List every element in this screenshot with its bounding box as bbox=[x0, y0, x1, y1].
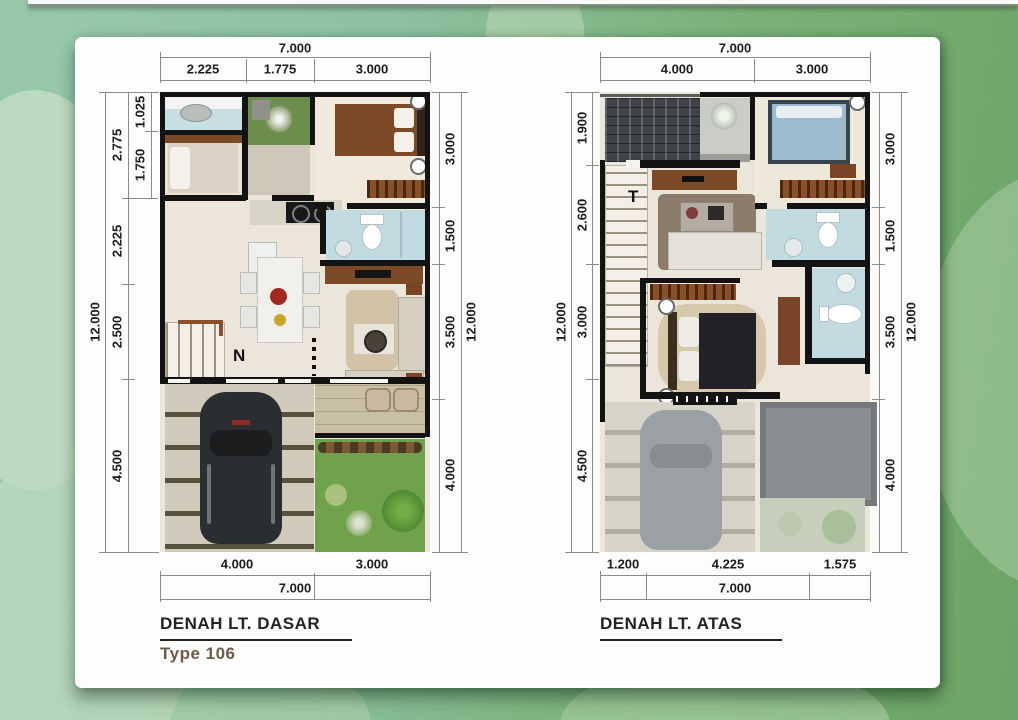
wall bbox=[160, 92, 430, 97]
dim-tick bbox=[600, 571, 601, 602]
tv-icon bbox=[355, 270, 391, 278]
dim-line bbox=[879, 92, 880, 552]
decor-icon bbox=[686, 207, 698, 219]
dim-label: 2.225 bbox=[187, 63, 220, 76]
dim-label: 4.000 bbox=[884, 459, 897, 492]
stair-rail bbox=[178, 320, 223, 324]
dim-label: 1.500 bbox=[884, 220, 897, 253]
dish-icon bbox=[274, 314, 286, 326]
dim-tick bbox=[160, 571, 161, 602]
dashed-partition bbox=[312, 338, 316, 376]
toilet-icon bbox=[362, 224, 382, 250]
car bbox=[200, 392, 282, 544]
sofa bbox=[668, 232, 762, 270]
window bbox=[226, 379, 278, 383]
dim-tick bbox=[430, 52, 431, 83]
dim-line bbox=[600, 599, 870, 600]
wall bbox=[320, 209, 326, 254]
wall bbox=[805, 358, 870, 364]
faded-flower-icon bbox=[778, 512, 802, 536]
floorplan-sheet: N bbox=[75, 37, 940, 688]
canopy-roof bbox=[760, 402, 877, 506]
dim-label: 12.000 bbox=[555, 302, 568, 342]
chair bbox=[240, 272, 257, 294]
ghost-car bbox=[640, 410, 722, 550]
bed-headboard bbox=[668, 312, 677, 390]
pillow bbox=[776, 106, 842, 118]
plan-ground-floor: N bbox=[160, 92, 430, 552]
nightstand bbox=[830, 164, 856, 178]
faded-bush-icon bbox=[822, 510, 856, 544]
chair bbox=[303, 272, 320, 294]
dim-label: 3.500 bbox=[444, 316, 457, 349]
dim-label: 4.500 bbox=[576, 450, 589, 483]
wall bbox=[315, 433, 425, 438]
dim-tick bbox=[432, 92, 468, 93]
flower-icon bbox=[325, 484, 347, 506]
dim-tick bbox=[314, 59, 315, 83]
dim-label: 12.000 bbox=[89, 302, 102, 342]
dim-line bbox=[600, 575, 870, 576]
bush-icon bbox=[382, 490, 424, 532]
dim-line bbox=[160, 575, 430, 576]
dim-tick bbox=[99, 92, 159, 93]
dim-label: 4.000 bbox=[221, 558, 254, 571]
dim-tick bbox=[870, 571, 871, 602]
car-detail bbox=[232, 420, 250, 425]
plan-type-label: Type 106 bbox=[160, 644, 236, 664]
pillow bbox=[394, 108, 414, 128]
wall bbox=[272, 195, 314, 201]
bed-headboard bbox=[165, 135, 242, 143]
dim-label: 2.600 bbox=[576, 199, 589, 232]
dim-tick bbox=[870, 52, 871, 83]
dim-line bbox=[160, 599, 430, 600]
dim-line bbox=[160, 80, 430, 81]
wall bbox=[640, 278, 740, 283]
window bbox=[330, 379, 388, 383]
bed-headboard bbox=[417, 104, 425, 156]
stair-rail bbox=[219, 320, 223, 336]
wall bbox=[600, 160, 605, 422]
ghost-car-windshield bbox=[650, 444, 712, 468]
plan-title-ground: DENAH LT. DASAR bbox=[160, 614, 352, 641]
dim-label: 7.000 bbox=[719, 582, 752, 595]
dim-label: 7.000 bbox=[719, 42, 752, 55]
flower-icon bbox=[346, 510, 372, 536]
car-highlight bbox=[207, 464, 211, 524]
dim-label: 1.200 bbox=[607, 558, 640, 571]
chair bbox=[303, 306, 320, 328]
plan-title-upper: DENAH LT. ATAS bbox=[600, 614, 782, 641]
dim-tick bbox=[809, 573, 810, 600]
sink-icon bbox=[180, 104, 212, 122]
plant-icon bbox=[710, 102, 738, 130]
dim-line bbox=[151, 92, 152, 198]
wall bbox=[347, 203, 430, 209]
dim-tick bbox=[122, 379, 135, 380]
dim-line bbox=[461, 92, 462, 552]
sink-icon bbox=[335, 240, 352, 257]
dim-label: 3.000 bbox=[356, 558, 389, 571]
dim-label: 1.775 bbox=[264, 63, 297, 76]
bookshelf bbox=[367, 180, 425, 198]
wall bbox=[640, 160, 740, 168]
dim-label: 4.000 bbox=[661, 63, 694, 76]
dim-label: 3.000 bbox=[796, 63, 829, 76]
dim-label: 1.025 bbox=[134, 96, 147, 129]
planter-pot bbox=[252, 100, 270, 120]
burner-icon bbox=[292, 205, 310, 223]
foyer-floor bbox=[248, 145, 310, 195]
sink-icon bbox=[836, 273, 856, 293]
wall bbox=[772, 260, 870, 267]
dim-label: 1.500 bbox=[444, 220, 457, 253]
dim-line bbox=[105, 92, 106, 552]
shower-glass bbox=[400, 212, 402, 258]
stairs-label: T bbox=[628, 188, 638, 205]
dim-tick bbox=[565, 92, 599, 93]
pillow bbox=[394, 132, 414, 152]
poster-background: N bbox=[0, 0, 1018, 720]
window-sill-ticks bbox=[676, 396, 734, 402]
dim-tick bbox=[314, 573, 315, 600]
toilet-icon bbox=[818, 222, 838, 248]
wall bbox=[805, 267, 812, 359]
dim-line bbox=[160, 57, 430, 58]
pillow bbox=[679, 317, 699, 347]
door-gap bbox=[626, 160, 640, 168]
dim-label: 2.775 bbox=[111, 129, 124, 162]
toilet-tank bbox=[819, 306, 829, 322]
wall bbox=[160, 195, 246, 201]
dim-tick bbox=[99, 552, 159, 553]
toilet-icon bbox=[826, 304, 862, 324]
dim-tick bbox=[646, 573, 647, 600]
roof-edge bbox=[600, 94, 700, 97]
top-card-edge bbox=[28, 0, 1018, 6]
dim-label: 4.225 bbox=[712, 558, 745, 571]
dim-tick bbox=[872, 207, 885, 208]
dim-label: 2.500 bbox=[111, 316, 124, 349]
car-highlight bbox=[271, 464, 275, 524]
pillow bbox=[679, 351, 699, 381]
decor-icon bbox=[708, 206, 724, 220]
stairs bbox=[165, 322, 225, 379]
wall bbox=[755, 203, 767, 209]
dish-icon bbox=[270, 288, 287, 305]
dim-tick bbox=[432, 399, 445, 400]
wall bbox=[242, 92, 248, 200]
wall bbox=[320, 260, 430, 266]
roof-tiles bbox=[605, 98, 700, 162]
dim-label: 7.000 bbox=[279, 42, 312, 55]
bed bbox=[699, 313, 756, 389]
wall bbox=[160, 92, 165, 384]
chair bbox=[240, 306, 257, 328]
dim-label: 3.000 bbox=[884, 133, 897, 166]
terrace-chair bbox=[393, 388, 419, 412]
wall bbox=[865, 92, 870, 374]
dim-tick bbox=[586, 264, 599, 265]
dim-line bbox=[439, 92, 440, 552]
dim-label: 4.000 bbox=[444, 459, 457, 492]
dim-label: 1.575 bbox=[824, 558, 857, 571]
wall bbox=[160, 130, 248, 135]
dim-tick bbox=[754, 59, 755, 83]
dim-line bbox=[600, 80, 870, 81]
wall bbox=[787, 203, 870, 209]
sofa bbox=[398, 297, 426, 373]
wardrobe bbox=[778, 297, 800, 365]
dim-tick bbox=[122, 284, 135, 285]
wall bbox=[640, 278, 646, 398]
dim-tick bbox=[246, 59, 247, 83]
dim-label: 1.750 bbox=[134, 149, 147, 182]
dim-tick bbox=[586, 165, 599, 166]
dim-line bbox=[592, 92, 593, 552]
north-label: N bbox=[233, 347, 245, 364]
dim-label: 7.000 bbox=[279, 582, 312, 595]
dim-label: 3.500 bbox=[884, 316, 897, 349]
lamp-icon bbox=[658, 298, 675, 315]
dim-tick bbox=[586, 379, 599, 380]
dim-line bbox=[600, 57, 870, 58]
dim-label: 1.900 bbox=[576, 112, 589, 145]
pillow bbox=[170, 147, 190, 189]
dim-label: 3.000 bbox=[356, 63, 389, 76]
terrace-chair bbox=[365, 388, 391, 412]
dim-label: 2.225 bbox=[111, 225, 124, 258]
dim-tick bbox=[430, 571, 431, 602]
side-table bbox=[406, 283, 422, 295]
dim-tick bbox=[160, 52, 161, 83]
shrub-row bbox=[318, 442, 422, 453]
dim-tick bbox=[432, 207, 445, 208]
window bbox=[285, 379, 311, 383]
dim-tick bbox=[600, 52, 601, 83]
coffee-table bbox=[364, 330, 387, 353]
dim-tick bbox=[872, 399, 885, 400]
dim-label: 3.000 bbox=[576, 306, 589, 339]
dim-label: 3.000 bbox=[444, 133, 457, 166]
dim-tick bbox=[872, 264, 885, 265]
plan-upper-floor: T bbox=[600, 92, 870, 552]
dim-tick bbox=[432, 264, 445, 265]
window bbox=[168, 379, 190, 383]
dim-tick bbox=[122, 198, 158, 199]
dim-label: 4.500 bbox=[111, 450, 124, 483]
dim-tick bbox=[872, 92, 908, 93]
dim-line bbox=[901, 92, 902, 552]
dim-tick bbox=[565, 552, 599, 553]
wall bbox=[750, 92, 755, 160]
sink-icon bbox=[784, 238, 803, 257]
dim-line bbox=[571, 92, 572, 552]
tv-icon bbox=[682, 176, 704, 182]
bookshelf bbox=[780, 180, 865, 198]
dim-label: 12.000 bbox=[465, 302, 478, 342]
dim-tick bbox=[145, 131, 158, 132]
dim-label: 12.000 bbox=[905, 302, 918, 342]
wall bbox=[700, 92, 870, 97]
wall bbox=[310, 92, 315, 145]
car-windshield bbox=[210, 430, 272, 456]
dim-tick bbox=[432, 552, 468, 553]
dim-line bbox=[128, 92, 129, 552]
dim-tick bbox=[872, 552, 908, 553]
